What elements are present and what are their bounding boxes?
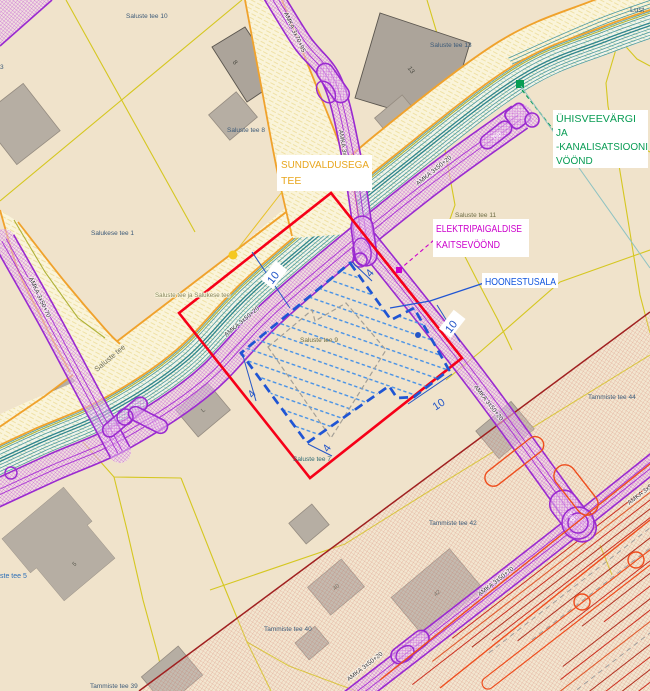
svg-text:Tammiste tee 39: Tammiste tee 39 bbox=[90, 683, 138, 690]
svg-text:ÜHISVEEVÄRGI: ÜHISVEEVÄRGI bbox=[556, 113, 636, 125]
svg-text:ste tee 5: ste tee 5 bbox=[0, 573, 27, 580]
svg-text:KAITSEVÖÖND: KAITSEVÖÖND bbox=[436, 239, 500, 251]
svg-text:TEE: TEE bbox=[281, 175, 301, 187]
svg-text:Lust: Lust bbox=[630, 5, 645, 14]
svg-text:Tammiste tee 42: Tammiste tee 42 bbox=[429, 520, 477, 527]
svg-text:Saluste tee 11: Saluste tee 11 bbox=[455, 212, 496, 219]
svg-text:Saluste tee 8: Saluste tee 8 bbox=[227, 127, 265, 134]
svg-text:VÖÖND: VÖÖND bbox=[556, 155, 593, 167]
svg-text:Saluste tee 7: Saluste tee 7 bbox=[293, 456, 331, 463]
svg-text:Tammiste tee 44: Tammiste tee 44 bbox=[588, 394, 636, 401]
svg-text:Saluste tee 9: Saluste tee 9 bbox=[300, 337, 338, 344]
svg-text:-KANALISATSIOONI: -KANALISATSIOONI bbox=[556, 142, 648, 153]
svg-text:JA: JA bbox=[556, 128, 568, 139]
svg-text:HOONESTUSALA: HOONESTUSALA bbox=[485, 276, 556, 288]
svg-text:Saluste tee ja Salukese tee: Saluste tee ja Salukese tee bbox=[155, 292, 231, 299]
svg-text:Salukese tee 1: Salukese tee 1 bbox=[91, 230, 134, 237]
svg-text:3: 3 bbox=[0, 64, 4, 71]
svg-text:ELEKTRIPAIGALDISE: ELEKTRIPAIGALDISE bbox=[436, 223, 522, 235]
svg-text:Tammiste tee 40: Tammiste tee 40 bbox=[264, 626, 312, 633]
svg-text:Saluste tee 13: Saluste tee 13 bbox=[430, 42, 472, 49]
svg-text:Saluste tee 10: Saluste tee 10 bbox=[126, 13, 168, 20]
svg-text:SUNDVALDUSEGA: SUNDVALDUSEGA bbox=[281, 159, 369, 171]
